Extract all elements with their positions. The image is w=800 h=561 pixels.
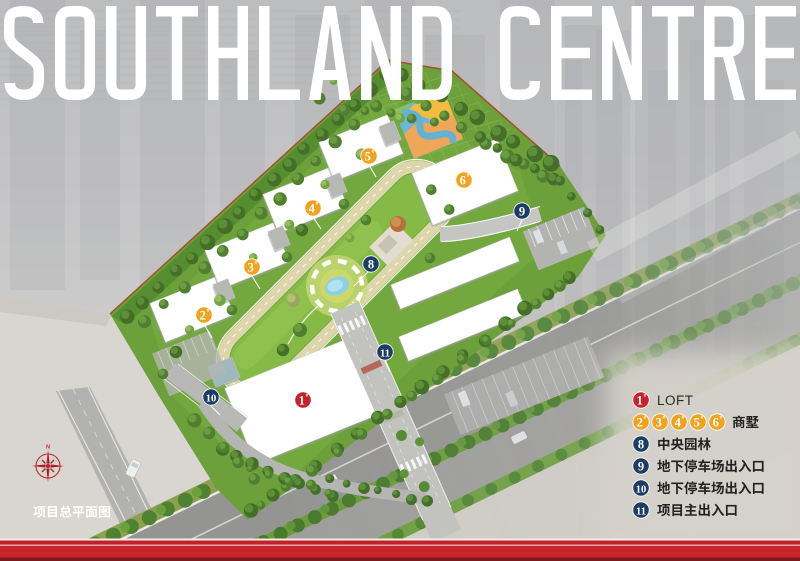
svg-text:10: 10 bbox=[206, 393, 217, 404]
svg-text:1: 1 bbox=[299, 393, 305, 407]
svg-text:8: 8 bbox=[638, 437, 644, 451]
svg-text:3: 3 bbox=[656, 415, 662, 429]
svg-text:N: N bbox=[46, 445, 50, 451]
svg-text:11: 11 bbox=[636, 506, 646, 517]
svg-text:5: 5 bbox=[694, 415, 700, 429]
svg-text:6: 6 bbox=[460, 173, 466, 187]
svg-text:5: 5 bbox=[365, 149, 371, 163]
svg-text:1: 1 bbox=[637, 393, 643, 407]
svg-text:9: 9 bbox=[519, 204, 525, 218]
svg-text:2: 2 bbox=[637, 415, 643, 429]
svg-text:10: 10 bbox=[636, 484, 647, 495]
svg-text:3: 3 bbox=[248, 260, 254, 274]
svg-text:9: 9 bbox=[638, 459, 644, 473]
svg-text:6: 6 bbox=[713, 415, 719, 429]
svg-text:2: 2 bbox=[200, 308, 206, 322]
svg-text:8: 8 bbox=[368, 257, 374, 271]
svg-text:LOFT: LOFT bbox=[657, 393, 694, 408]
svg-text:11: 11 bbox=[380, 348, 390, 359]
